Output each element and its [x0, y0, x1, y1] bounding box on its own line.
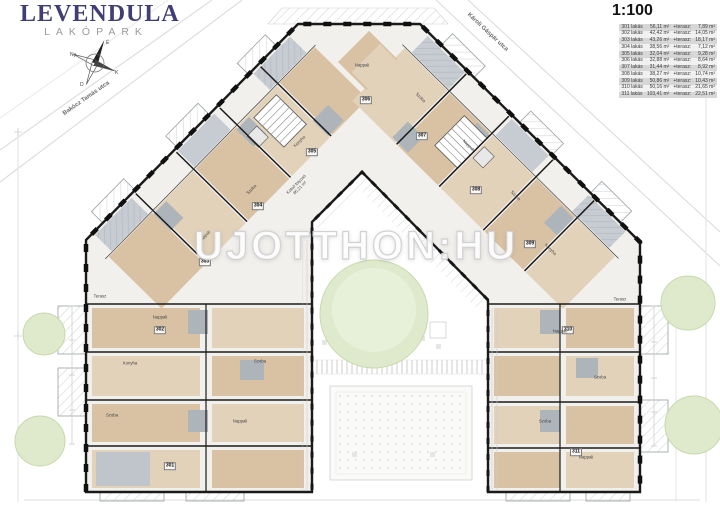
table-row: 311 lakás 103,41 m² +terasz: 22,51 m²: [619, 92, 717, 99]
terrace-cell: 7,12 m²: [693, 44, 717, 51]
apex-roof-hatch: [268, 8, 448, 24]
table-row: 308 lakás 38,27 m² +terasz: 10,74 m²: [619, 71, 717, 78]
table-row: 304 lakás 38,56 m² +terasz: 7,12 m²: [619, 44, 717, 51]
unit-cell: 304 lakás: [619, 44, 644, 51]
area-cell: 103,41 m²: [645, 92, 672, 99]
logo-title: LEVENDULA: [20, 1, 172, 27]
terrace-cell: 10,74 m²: [693, 71, 717, 78]
floorplan-page: UJOTTHON:HU LEVENDULA LAKÓPARK 1:100 301…: [0, 0, 720, 510]
unit-cell: 308 lakás: [619, 71, 644, 78]
watermark: UJOTTHON:HU: [186, 224, 526, 269]
plus-terrace-cell: +terasz:: [671, 44, 693, 51]
area-cell: 38,27 m²: [645, 71, 672, 78]
apartment-area-table: 301 lakás 56,11 m² +terasz: 7,89 m² 302 …: [619, 24, 717, 98]
compass-rose: É D K Ny: [68, 36, 122, 90]
scale-label: 1:100: [612, 2, 653, 20]
area-cell: 38,56 m²: [645, 44, 672, 51]
logo: LEVENDULA LAKÓPARK: [20, 1, 172, 38]
terrace-cell: 22,51 m²: [693, 92, 717, 99]
compass-west-label: Ny: [70, 52, 77, 58]
planter: [430, 322, 446, 338]
compass-north-label: É: [106, 39, 110, 46]
plus-terrace-cell: +terasz:: [671, 71, 693, 78]
tree: [665, 396, 720, 454]
plus-terrace-cell: +terasz:: [671, 92, 693, 99]
tree: [15, 416, 65, 466]
tree: [661, 276, 715, 330]
compass-east-label: K: [115, 70, 119, 76]
tree: [23, 313, 65, 355]
compass-south-label: D: [80, 82, 84, 88]
unit-cell: 311 lakás: [619, 92, 644, 99]
logo-subtitle: LAKÓPARK: [20, 26, 172, 38]
